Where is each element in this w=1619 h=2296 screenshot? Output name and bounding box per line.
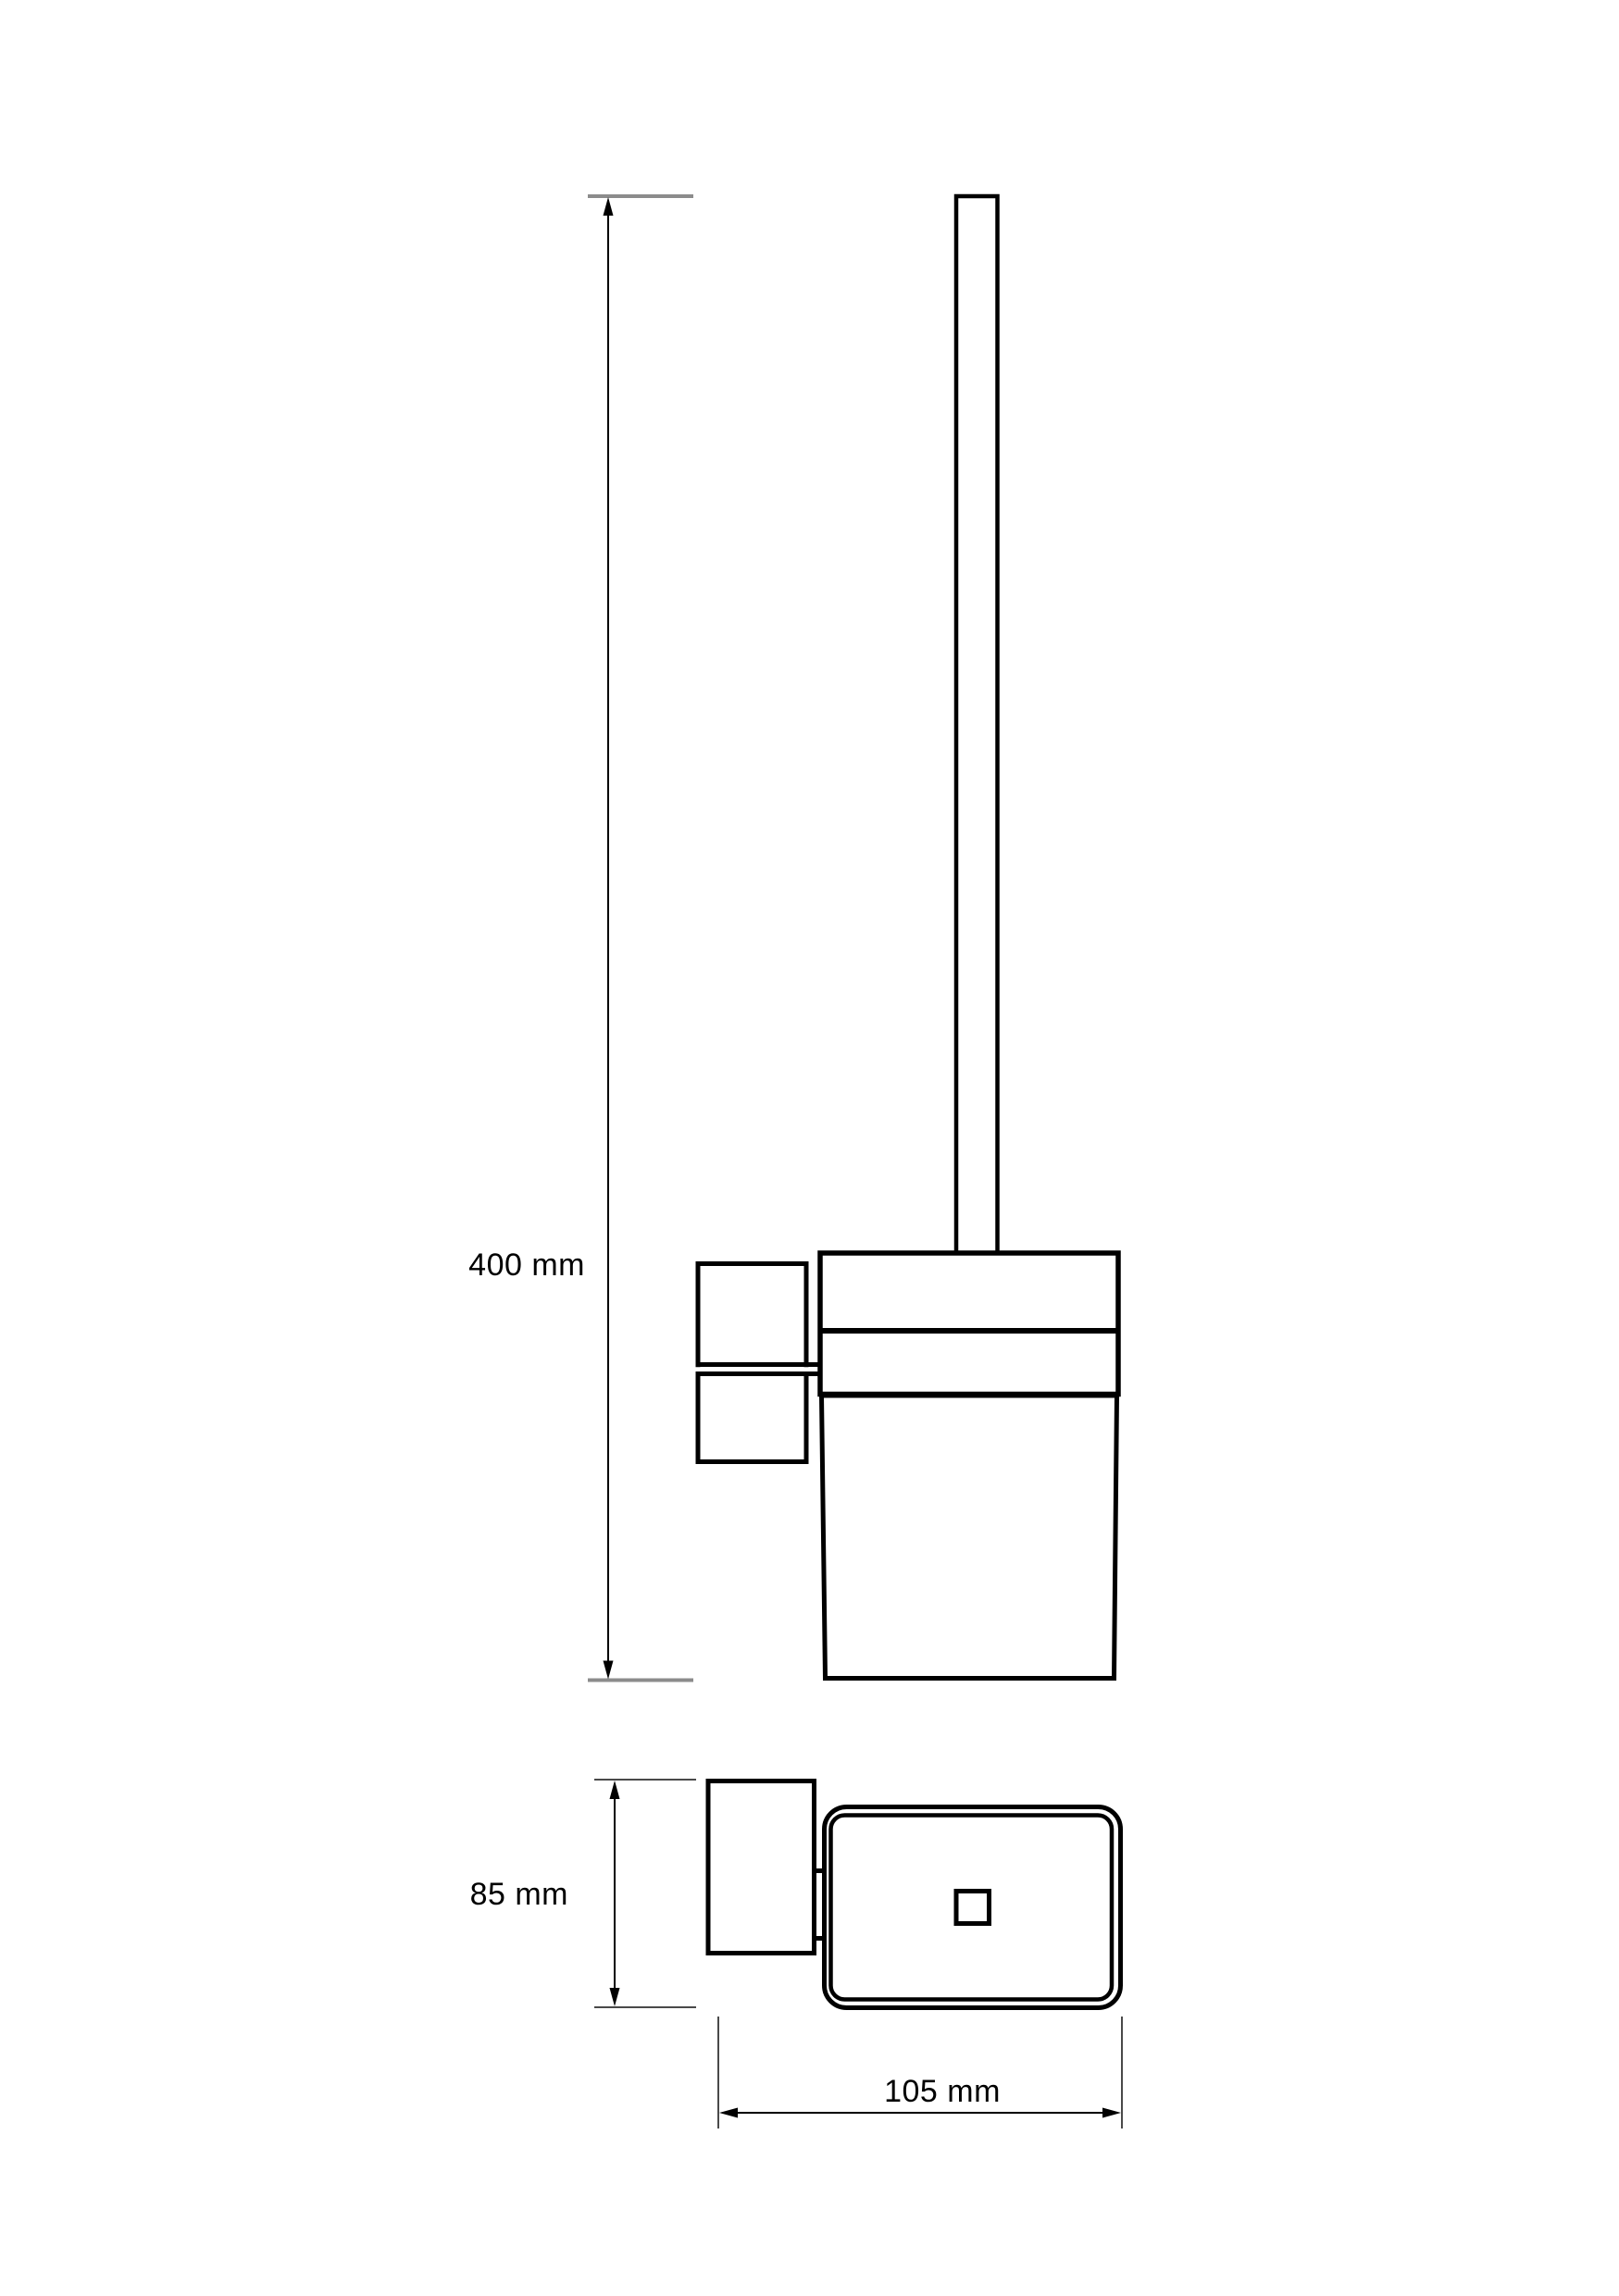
- dimension-85mm: 85 mm: [470, 1780, 696, 2007]
- top-view: [708, 1781, 1121, 2008]
- arrowhead-right-icon: [1102, 2108, 1121, 2118]
- dimension-105mm: 105 mm: [718, 2017, 1122, 2128]
- dimension-label-width: 105 mm: [884, 2074, 1001, 2109]
- front-view: [693, 196, 1118, 1679]
- arrowhead-down-icon: [604, 1661, 614, 1680]
- arrowhead-left-icon: [719, 2108, 738, 2118]
- arrowhead-up-icon: [604, 197, 614, 216]
- arrowhead-up-icon: [610, 1781, 620, 1799]
- dimension-label-depth: 85 mm: [470, 1877, 568, 1912]
- dimension-400mm: 400 mm: [468, 196, 693, 1681]
- dimension-label-height: 400 mm: [468, 1247, 585, 1283]
- holder-head: [820, 1253, 1118, 1395]
- arrowhead-down-icon: [610, 1988, 620, 2006]
- wall-bracket-top: [708, 1781, 815, 1954]
- wall-bracket-gap: [693, 1367, 816, 1371]
- brush-handle-rod: [956, 196, 998, 1260]
- technical-drawing: 400 mm 85 mm 105 mm: [0, 0, 1619, 2296]
- handle-cross-section: [956, 1892, 990, 1924]
- glass-cup: [822, 1396, 1117, 1679]
